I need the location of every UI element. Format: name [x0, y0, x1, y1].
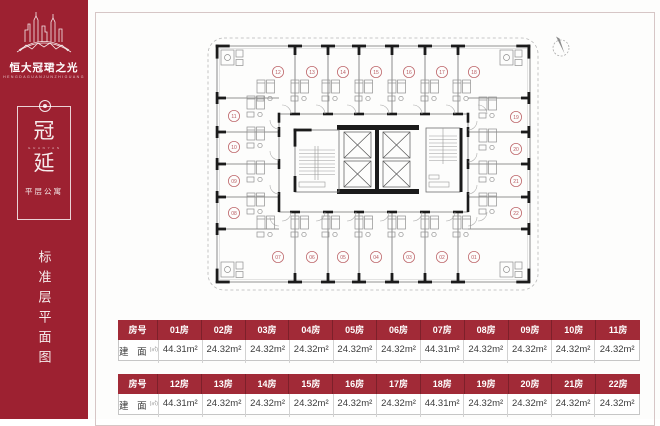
unit-number: 09 — [231, 179, 237, 185]
unit-furniture — [247, 96, 265, 117]
unit-door-arc — [270, 185, 279, 194]
room-header-cell: 02房 — [202, 320, 246, 340]
wall-stub — [358, 46, 361, 55]
unit-number: 02 — [439, 255, 445, 261]
area-cell: 24.32m² — [246, 394, 290, 417]
wall-stub — [424, 46, 427, 55]
wall-stub — [521, 163, 530, 166]
unit-furniture — [453, 80, 471, 101]
corner-bathroom — [221, 262, 243, 278]
wall-stub — [217, 131, 226, 134]
room-header-cell: 20房 — [509, 374, 553, 394]
unit-furniture — [453, 216, 471, 237]
brand-caption: HENGDAGUANJUNZHIGUANG — [0, 75, 88, 79]
wall-stub — [278, 113, 281, 123]
wall-stub — [216, 45, 230, 48]
unit-number: 20 — [513, 147, 519, 153]
north-compass-icon — [545, 28, 581, 64]
wall-stub — [521, 196, 530, 199]
stairwell-left — [294, 129, 339, 192]
wall-stub — [387, 211, 397, 214]
unit-furniture — [355, 80, 373, 101]
corner-bathroom — [221, 50, 243, 66]
unit-door-arc — [446, 105, 455, 114]
unit-door-arc — [347, 105, 356, 114]
area-cell: 24.32m² — [464, 340, 508, 363]
wall-stub — [521, 131, 530, 134]
unit-number: 11 — [231, 114, 236, 120]
unit-number: 13 — [309, 70, 315, 76]
room-header-cell: 09房 — [509, 320, 553, 340]
room-header-cell: 10房 — [552, 320, 596, 340]
unit-door-arc — [413, 105, 422, 114]
wall-stub — [453, 211, 463, 214]
unit-number: 15 — [373, 70, 379, 76]
unit-furniture — [257, 216, 275, 237]
wall-stub — [278, 192, 281, 202]
area-cell: 44.31m² — [421, 340, 465, 363]
wall-stub — [354, 211, 364, 214]
area-cell: 24.32m² — [508, 394, 552, 417]
wall-stub — [290, 211, 300, 214]
area-cell: 24.32m² — [464, 394, 508, 417]
room-no-label: 房号 — [118, 374, 158, 394]
unit-furniture — [322, 80, 340, 101]
room-header-cell: 16房 — [333, 374, 377, 394]
brand-skyline-logo — [9, 8, 79, 60]
wall-stub — [391, 273, 394, 282]
emblem-small-caption: G U A N Y A N — [18, 146, 70, 150]
unit-number: 05 — [340, 255, 346, 261]
vertical-title: 标准层平面图 — [35, 250, 54, 370]
emblem-char-bottom: 延 — [18, 153, 70, 174]
wall-stub — [217, 163, 226, 166]
room-header-cell: 12房 — [158, 374, 202, 394]
wall-stub — [358, 273, 361, 282]
unit-door-arc — [347, 212, 356, 221]
unit-door-arc — [380, 212, 389, 221]
room-header-cell: 15房 — [289, 374, 333, 394]
room-header-cell: 01房 — [158, 320, 202, 340]
area-row-label: 建 面(㎡) — [119, 394, 159, 417]
unit-door-arc — [380, 105, 389, 114]
unit-door-arc — [468, 185, 477, 194]
room-header-cell: 08房 — [465, 320, 509, 340]
unit-furniture — [388, 80, 406, 101]
poster-page: 恒大冠珺之光 HENGDAGUANJUNZHIGUANG 冠 G U A N Y… — [0, 0, 660, 419]
wall-stub — [327, 46, 330, 55]
area-cell: 24.32m² — [595, 394, 639, 417]
area-cell: 24.32m² — [377, 394, 421, 417]
room-no-label: 房号 — [118, 320, 158, 340]
unit-number: 03 — [406, 255, 412, 261]
area-cell: 24.32m² — [552, 394, 596, 417]
emblem-subtitle: 平层公寓 — [18, 186, 70, 197]
unit-door-arc — [270, 151, 279, 160]
unit-number: 06 — [309, 255, 315, 261]
unit-number: 18 — [471, 70, 477, 76]
area-cell: 24.32m² — [203, 394, 247, 417]
wall-stub — [327, 273, 330, 282]
corner-bathroom — [500, 50, 522, 66]
unit-furniture — [421, 80, 439, 101]
wall-stub — [278, 159, 281, 169]
area-cell: 24.32m² — [290, 340, 334, 363]
wall-stub — [217, 228, 226, 231]
wall-stub — [354, 113, 364, 116]
unit-door-arc — [468, 153, 477, 162]
unit-door-arc — [282, 105, 291, 114]
wall-stub — [420, 211, 430, 214]
area-cell: 44.31m² — [421, 394, 465, 417]
unit-number: 17 — [439, 70, 445, 76]
wall-stub — [294, 273, 297, 282]
table-header-row: 房号01房02房03房04房05房06房07房08房09房10房11房 — [118, 320, 640, 340]
wall-stub — [216, 281, 230, 284]
unit-number: 22 — [513, 211, 519, 217]
unit-furniture — [355, 216, 373, 237]
wall-stub — [453, 113, 463, 116]
sidebar: 恒大冠珺之光 HENGDAGUANJUNZHIGUANG 冠 G U A N Y… — [0, 0, 88, 419]
unit-number: 04 — [373, 255, 379, 261]
room-header-cell: 04房 — [289, 320, 333, 340]
unit-door-arc — [282, 212, 291, 221]
unit-furniture — [388, 216, 406, 237]
room-header-cell: 05房 — [333, 320, 377, 340]
room-header-cell: 03房 — [246, 320, 290, 340]
wall-stub — [290, 113, 300, 116]
brand-name: 恒大冠珺之光 — [0, 60, 88, 75]
emblem-char-top: 冠 — [18, 121, 70, 142]
unit-door-arc — [413, 212, 422, 221]
wall-stub — [278, 202, 281, 212]
unit-number: 01 — [471, 255, 477, 261]
area-cell: 24.32m² — [552, 340, 596, 363]
room-area-table-1: 房号01房02房03房04房05房06房07房08房09房10房11房建 面(㎡… — [118, 320, 640, 361]
area-cell: 24.32m² — [508, 340, 552, 363]
wall-stub — [424, 273, 427, 282]
unit-door-arc — [446, 212, 455, 221]
area-cell: 24.32m² — [246, 340, 290, 363]
wall-stub — [323, 211, 333, 214]
room-header-cell: 06房 — [377, 320, 421, 340]
wall-stub — [528, 269, 531, 283]
wall-stub — [217, 196, 226, 199]
unit-door-arc — [270, 120, 279, 129]
wall-stub — [278, 127, 281, 137]
unit-number: 21 — [513, 179, 519, 185]
room-header-cell: 19房 — [465, 374, 509, 394]
room-header-cell: 14房 — [246, 374, 290, 394]
wall-stub — [457, 273, 460, 282]
unit-number: 12 — [275, 70, 281, 76]
wall-stub — [467, 192, 470, 202]
unit-door-arc — [316, 212, 325, 221]
wall-stub — [217, 97, 226, 100]
stairwell-right — [426, 128, 463, 192]
area-cell: 24.32m² — [203, 340, 247, 363]
room-header-cell: 22房 — [596, 374, 640, 394]
area-cell: 24.32m² — [334, 340, 378, 363]
wall-stub — [528, 45, 531, 59]
unit-door-arc — [468, 217, 477, 226]
unit-furniture — [421, 216, 439, 237]
unit-door-arc — [316, 105, 325, 114]
wall-stub — [467, 127, 470, 137]
unit-number: 16 — [406, 70, 412, 76]
unit-door-arc — [478, 212, 487, 221]
area-cell: 24.32m² — [290, 394, 334, 417]
wall-stub — [467, 113, 470, 123]
wall-stub — [391, 46, 394, 55]
wall-stub — [457, 46, 460, 55]
wall-stub — [387, 113, 397, 116]
room-area-table-2: 房号12房13房14房15房16房17房18房19房20房21房22房建 面(㎡… — [118, 374, 640, 415]
room-header-cell: 11房 — [596, 320, 640, 340]
corner-bathroom — [500, 262, 522, 278]
wall-stub — [521, 97, 530, 100]
wall-stub — [521, 228, 530, 231]
floor-plan: 1213141516171811100908192021220706050403… — [195, 18, 550, 310]
unit-furniture — [247, 127, 265, 148]
unit-furniture — [479, 193, 497, 214]
area-cell: 24.32m² — [377, 340, 421, 363]
table-header-row: 房号12房13房14房15房16房17房18房19房20房21房22房 — [118, 374, 640, 394]
area-cell: 44.31m² — [159, 340, 203, 363]
unit-furniture — [291, 80, 309, 101]
unit-number: 19 — [513, 115, 519, 121]
wall-stub — [467, 159, 470, 169]
unit-furniture — [322, 216, 340, 237]
wall-stub — [216, 269, 219, 283]
unit-number: 07 — [275, 255, 281, 261]
unit-furniture — [247, 193, 265, 214]
area-cell: 44.31m² — [159, 394, 203, 417]
wall-stub — [294, 46, 297, 55]
unit-number: 08 — [231, 211, 237, 217]
unit-door-arc — [468, 121, 477, 130]
area-cell: 24.32m² — [334, 394, 378, 417]
room-header-cell: 07房 — [421, 320, 465, 340]
table-area-row: 建 面(㎡)44.31m²24.32m²24.32m²24.32m²24.32m… — [118, 340, 640, 361]
wall-stub — [467, 202, 470, 212]
unit-number: 14 — [340, 70, 346, 76]
area-row-label: 建 面(㎡) — [119, 340, 159, 363]
elevator-core — [337, 125, 419, 194]
room-header-cell: 13房 — [202, 374, 246, 394]
unit-furniture — [479, 97, 497, 118]
unit-number: 10 — [231, 145, 237, 151]
room-header-cell: 21房 — [552, 374, 596, 394]
wall-stub — [323, 113, 333, 116]
area-cell: 24.32m² — [595, 340, 639, 363]
room-header-cell: 18房 — [421, 374, 465, 394]
table-area-row: 建 面(㎡)44.31m²24.32m²24.32m²24.32m²24.32m… — [118, 394, 640, 415]
room-header-cell: 17房 — [377, 374, 421, 394]
project-emblem: 冠 G U A N Y A N 延 平层公寓 — [17, 106, 71, 220]
unit-furniture — [291, 216, 309, 237]
wall-stub — [420, 113, 430, 116]
